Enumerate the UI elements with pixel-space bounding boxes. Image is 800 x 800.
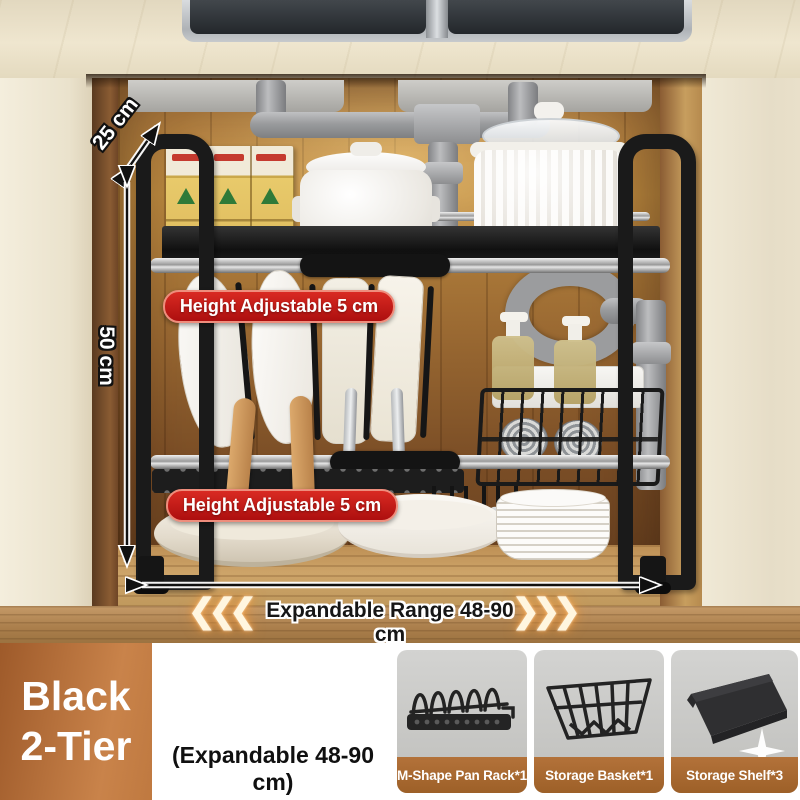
rack-foot-cap	[133, 582, 169, 594]
chevrons-right-icon: ❯❯❯	[512, 594, 574, 627]
component-caption: Storage Basket*1	[534, 757, 664, 793]
cabinet-door-left	[0, 78, 92, 608]
variant-tier-label: 2-Tier	[21, 722, 132, 771]
variant-color-label: Black	[21, 672, 130, 721]
box-print	[256, 154, 286, 161]
rack-foot	[138, 556, 164, 584]
sink-basin-left	[190, 0, 426, 34]
component-card-pan-rack: M-Shape Pan Rack*1	[397, 650, 527, 793]
component-caption: Storage Shelf*3	[671, 757, 798, 793]
chevrons-left-icon: ❮❮❮	[188, 594, 250, 627]
component-caption: M-Shape Pan Rack*1	[397, 757, 527, 793]
rack-right-leg	[618, 134, 696, 590]
m-shape-pan-rack-icon	[397, 650, 527, 757]
storage-shelf-icon	[671, 650, 798, 757]
expandable-note: (Expandable 48-90 cm)	[150, 742, 396, 796]
box-print	[214, 154, 244, 161]
plate-stack-top	[500, 489, 606, 507]
expandable-range-label: Expandable Range 48-90 cm	[250, 599, 530, 647]
cabinet-door-right	[702, 78, 800, 608]
height-adjustable-badge-bottom: Height Adjustable 5 cm	[166, 489, 398, 522]
sink-basin-right	[448, 0, 684, 34]
variant-title-block: Black 2-Tier	[0, 643, 152, 800]
rack-foot	[640, 556, 666, 584]
height-adjustable-badge-top: Height Adjustable 5 cm	[163, 290, 395, 323]
component-card-basket: Storage Basket*1	[534, 650, 664, 793]
box-print	[261, 188, 279, 204]
footer-panel: Black 2-Tier (Expandable 48-90 cm)	[0, 643, 800, 800]
storage-basket-icon	[534, 650, 664, 757]
height-dimension-label: 50 cm	[94, 306, 118, 406]
sink-underside-left	[128, 80, 344, 112]
pipe-tee-fitting	[414, 104, 480, 144]
tier1-rail-sleeve	[300, 254, 450, 277]
component-card-shelf: Storage Shelf*3	[671, 650, 798, 793]
box-print	[219, 188, 237, 204]
product-image: 25 cm 50 cm Height Adjustable 5 cm Heigh…	[0, 0, 800, 800]
rack-foot-cap	[635, 582, 671, 594]
sink-divider	[426, 0, 448, 38]
white-pot-knob	[350, 142, 382, 156]
